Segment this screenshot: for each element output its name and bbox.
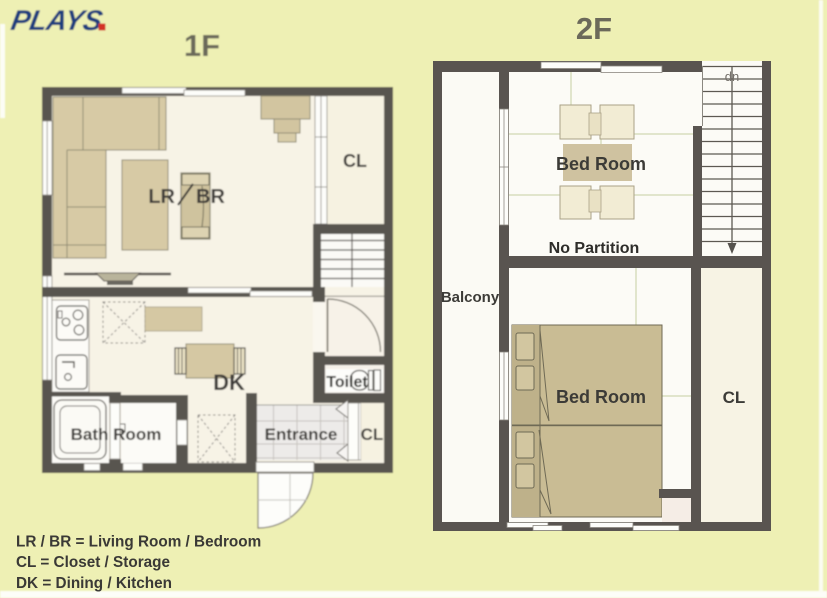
svg-text:2F: 2F xyxy=(576,11,612,46)
svg-text:CL: CL xyxy=(361,425,384,444)
svg-text:dn: dn xyxy=(725,69,739,84)
svg-text:Balcony: Balcony xyxy=(441,289,500,306)
svg-text:Bath Room: Bath Room xyxy=(71,425,162,444)
svg-text:1F: 1F xyxy=(184,28,220,63)
svg-text:DK = Dining / Kitchen: DK = Dining / Kitchen xyxy=(16,575,172,592)
svg-text:PLAYS: PLAYS xyxy=(8,5,104,37)
svg-text:CL = Closet / Storage: CL = Closet / Storage xyxy=(16,554,170,571)
svg-text:DK: DK xyxy=(213,370,245,395)
svg-text:No Partition: No Partition xyxy=(549,240,640,257)
svg-text:BR: BR xyxy=(196,186,225,208)
svg-text:LR: LR xyxy=(148,186,175,208)
svg-text:Toilet: Toilet xyxy=(326,374,368,391)
svg-text:Bed Room: Bed Room xyxy=(556,154,646,174)
svg-text:LR / BR = Living Room / Bedroo: LR / BR = Living Room / Bedroom xyxy=(16,534,261,551)
svg-text:Entrance: Entrance xyxy=(265,425,338,444)
svg-text:CL: CL xyxy=(343,151,367,171)
svg-text:CL: CL xyxy=(723,388,746,407)
svg-text:Bed Room: Bed Room xyxy=(556,387,646,407)
